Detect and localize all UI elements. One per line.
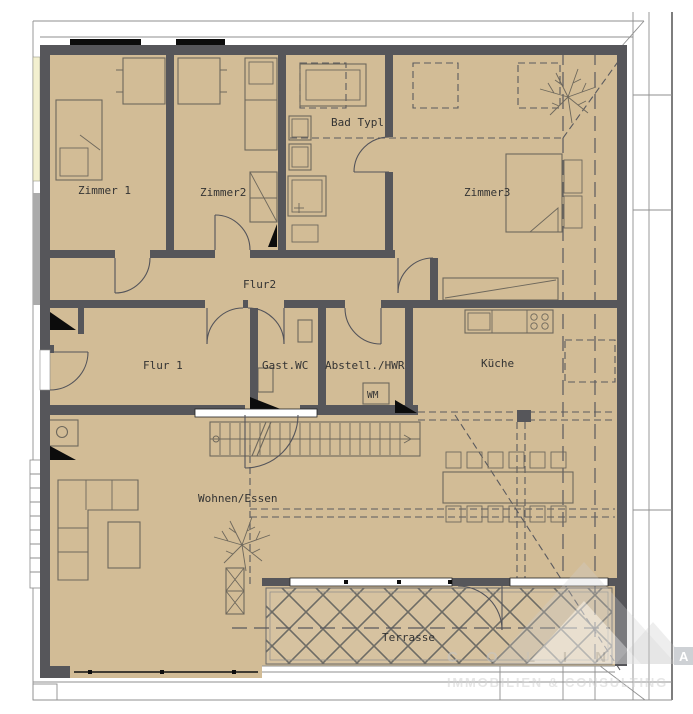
room-label-wohnen-essen: Wohnen/Essen	[198, 492, 277, 505]
room-label-terrasse: Terrasse	[382, 631, 435, 644]
terrace-window	[290, 578, 452, 586]
room-label-bad: Bad Typl	[331, 116, 384, 129]
watermark-boxed-letter: A	[679, 649, 689, 664]
room-label-zimmer3: Zimmer3	[464, 186, 510, 199]
room-label-flur1: Flur 1	[143, 359, 183, 372]
watermark-letters: C O L I N	[447, 649, 618, 666]
room-label-gast-wc: Gast.WC	[262, 359, 308, 372]
room-label-flur2: Flur2	[243, 278, 276, 291]
room-label-zimmer1: Zimmer 1	[78, 184, 131, 197]
interior-glass-door	[195, 409, 317, 417]
floor-plan-canvas: Zimmer 1 Zimmer2 Bad Typl Zimmer3 Flur2 …	[0, 0, 693, 714]
window-lintel	[176, 39, 225, 45]
floor-plan-svg: Zimmer 1 Zimmer2 Bad Typl Zimmer3 Flur2 …	[0, 0, 693, 714]
room-label-zimmer2: Zimmer2	[200, 186, 246, 199]
watermark-tagline: IMMOBILIEN & CONSULTING	[447, 675, 668, 690]
left-door-opening	[40, 350, 50, 390]
room-label-abstell-hwr: Abstell./HWR	[325, 359, 405, 372]
room-label-kueche: Küche	[481, 357, 514, 370]
side-window-strip	[33, 57, 40, 181]
window-lintel	[70, 39, 141, 45]
washing-machine-label: WM	[367, 390, 379, 401]
side-gray-strip	[33, 193, 40, 305]
